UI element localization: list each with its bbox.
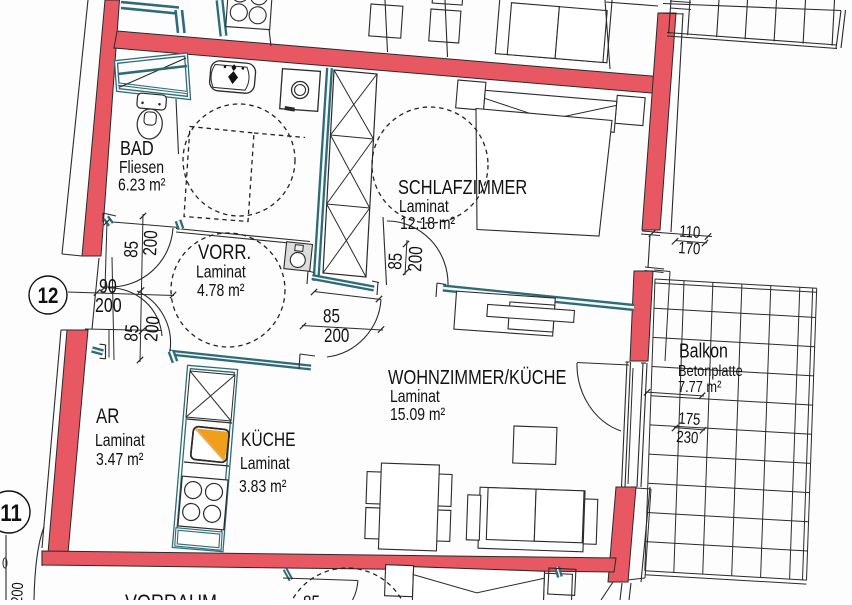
svg-text:200: 200 (95, 294, 122, 316)
svg-text:KÜCHE: KÜCHE (241, 428, 296, 450)
svg-text:Laminat: Laminat (240, 455, 290, 474)
svg-text:VORR.: VORR. (198, 241, 251, 264)
svg-text:Fliesen: Fliesen (119, 159, 164, 178)
svg-text:Laminat: Laminat (95, 432, 145, 451)
svg-text:WOHNZIMMER/KÜCHE: WOHNZIMMER/KÜCHE (388, 365, 566, 388)
svg-text:Laminat: Laminat (399, 198, 449, 217)
svg-text:3.47 m²: 3.47 m² (96, 451, 143, 470)
svg-text:Balkon: Balkon (679, 340, 728, 362)
svg-text:SCHLAFZIMMER: SCHLAFZIMMER (398, 175, 527, 198)
svg-text:BAD: BAD (120, 136, 154, 159)
svg-text:AR: AR (96, 405, 119, 428)
svg-text:12.18 m²: 12.18 m² (400, 215, 455, 234)
svg-text:200: 200 (403, 246, 426, 272)
svg-text:6.23 m²: 6.23 m² (118, 176, 165, 195)
svg-text:200: 200 (138, 230, 161, 256)
svg-text:12: 12 (38, 285, 59, 309)
svg-text:4.78 m²: 4.78 m² (197, 282, 244, 301)
svg-text:200: 200 (139, 315, 164, 343)
svg-text:230: 230 (676, 428, 699, 448)
svg-text:200: 200 (9, 582, 28, 600)
svg-text:Laminat: Laminat (390, 388, 440, 407)
svg-text:11: 11 (0, 499, 22, 526)
svg-text:VORRAUM: VORRAUM (125, 591, 217, 600)
svg-text:170: 170 (678, 239, 701, 259)
svg-text:3.83 m²: 3.83 m² (239, 478, 286, 497)
svg-text:Laminat: Laminat (196, 263, 246, 282)
svg-text:15.09 m²: 15.09 m² (390, 406, 445, 425)
svg-text:200: 200 (324, 324, 349, 346)
svg-text:85: 85 (303, 591, 320, 600)
svg-text:175: 175 (678, 409, 701, 429)
svg-text:7.77 m²: 7.77 m² (678, 379, 721, 397)
